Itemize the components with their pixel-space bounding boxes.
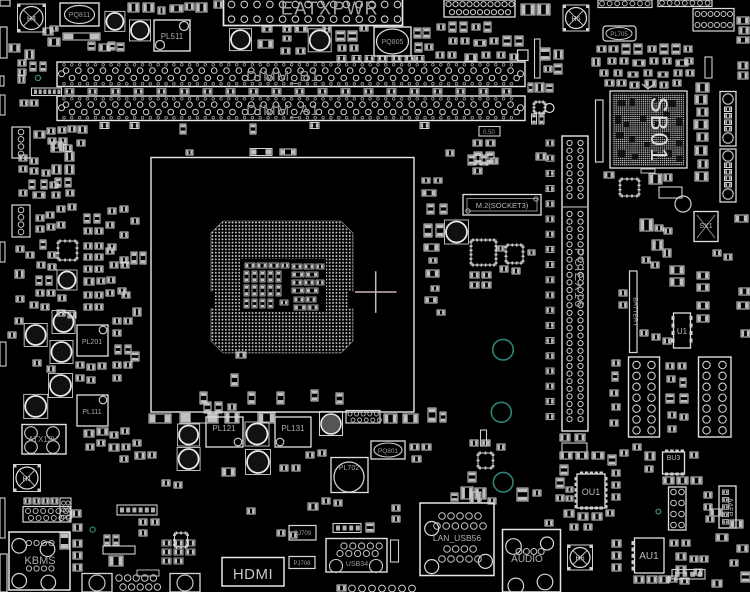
svg-text:AUDIO: AUDIO [511, 554, 543, 565]
svg-text:USB34: USB34 [346, 561, 368, 568]
svg-text:H1: H1 [23, 476, 32, 483]
svg-text:AAFP: AAFP [726, 498, 733, 517]
svg-text:SX1: SX1 [699, 223, 712, 230]
svg-text:OU1: OU1 [582, 487, 601, 497]
svg-text:PJ709: PJ709 [294, 531, 312, 537]
svg-text:U1: U1 [677, 327, 688, 336]
svg-text:PQ811: PQ811 [69, 12, 90, 19]
svg-text:SB01: SB01 [645, 97, 672, 164]
svg-text:PJ708: PJ708 [293, 561, 311, 567]
svg-text:BU3: BU3 [667, 455, 681, 462]
svg-text:PL131: PL131 [281, 424, 305, 433]
svg-text:ATX12V: ATX12V [28, 435, 58, 444]
svg-text:H4: H4 [27, 16, 36, 23]
svg-text:LAN_USB56: LAN_USB56 [433, 533, 481, 543]
svg-text:PL111: PL111 [82, 409, 101, 416]
svg-text:M.2(SOCKET3): M.2(SOCKET3) [476, 201, 529, 210]
svg-text:PL201: PL201 [82, 339, 102, 346]
svg-text:H5: H5 [572, 16, 581, 23]
svg-text:PL121: PL121 [212, 424, 236, 433]
svg-text:PL511: PL511 [161, 32, 184, 41]
svg-text:EATXPWR: EATXPWR [281, 0, 379, 19]
svg-text:KBMS: KBMS [24, 555, 55, 567]
svg-text:PCIEX16: PCIEX16 [572, 248, 587, 308]
svg-text:AU1: AU1 [639, 551, 659, 562]
svg-text:PQ801: PQ801 [378, 448, 399, 455]
svg-text:HDMI: HDMI [233, 566, 273, 583]
svg-text:PQ805: PQ805 [382, 39, 404, 46]
svg-text:H6: H6 [576, 556, 585, 563]
svg-text:PL705: PL705 [610, 32, 628, 38]
svg-text:DIMM_A1: DIMM_A1 [246, 102, 320, 119]
svg-text:0.50: 0.50 [483, 130, 495, 136]
svg-text:PL702: PL702 [339, 465, 359, 472]
svg-text:BATTERY: BATTERY [632, 297, 639, 327]
svg-text:DIMM_B1: DIMM_B1 [246, 68, 320, 85]
